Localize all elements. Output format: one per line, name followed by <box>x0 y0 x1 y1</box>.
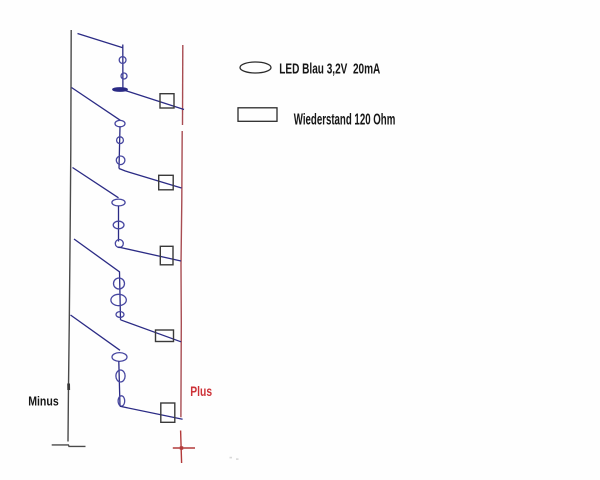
svg-text:Minus: Minus <box>28 395 59 409</box>
svg-text:Plus: Plus <box>190 383 212 399</box>
svg-text:LED Blau 3,2V 20mA: LED Blau 3,2V 20mA <box>279 61 380 78</box>
svg-text:Wiederstand 120 Ohm: Wiederstand 120 Ohm <box>294 111 396 128</box>
